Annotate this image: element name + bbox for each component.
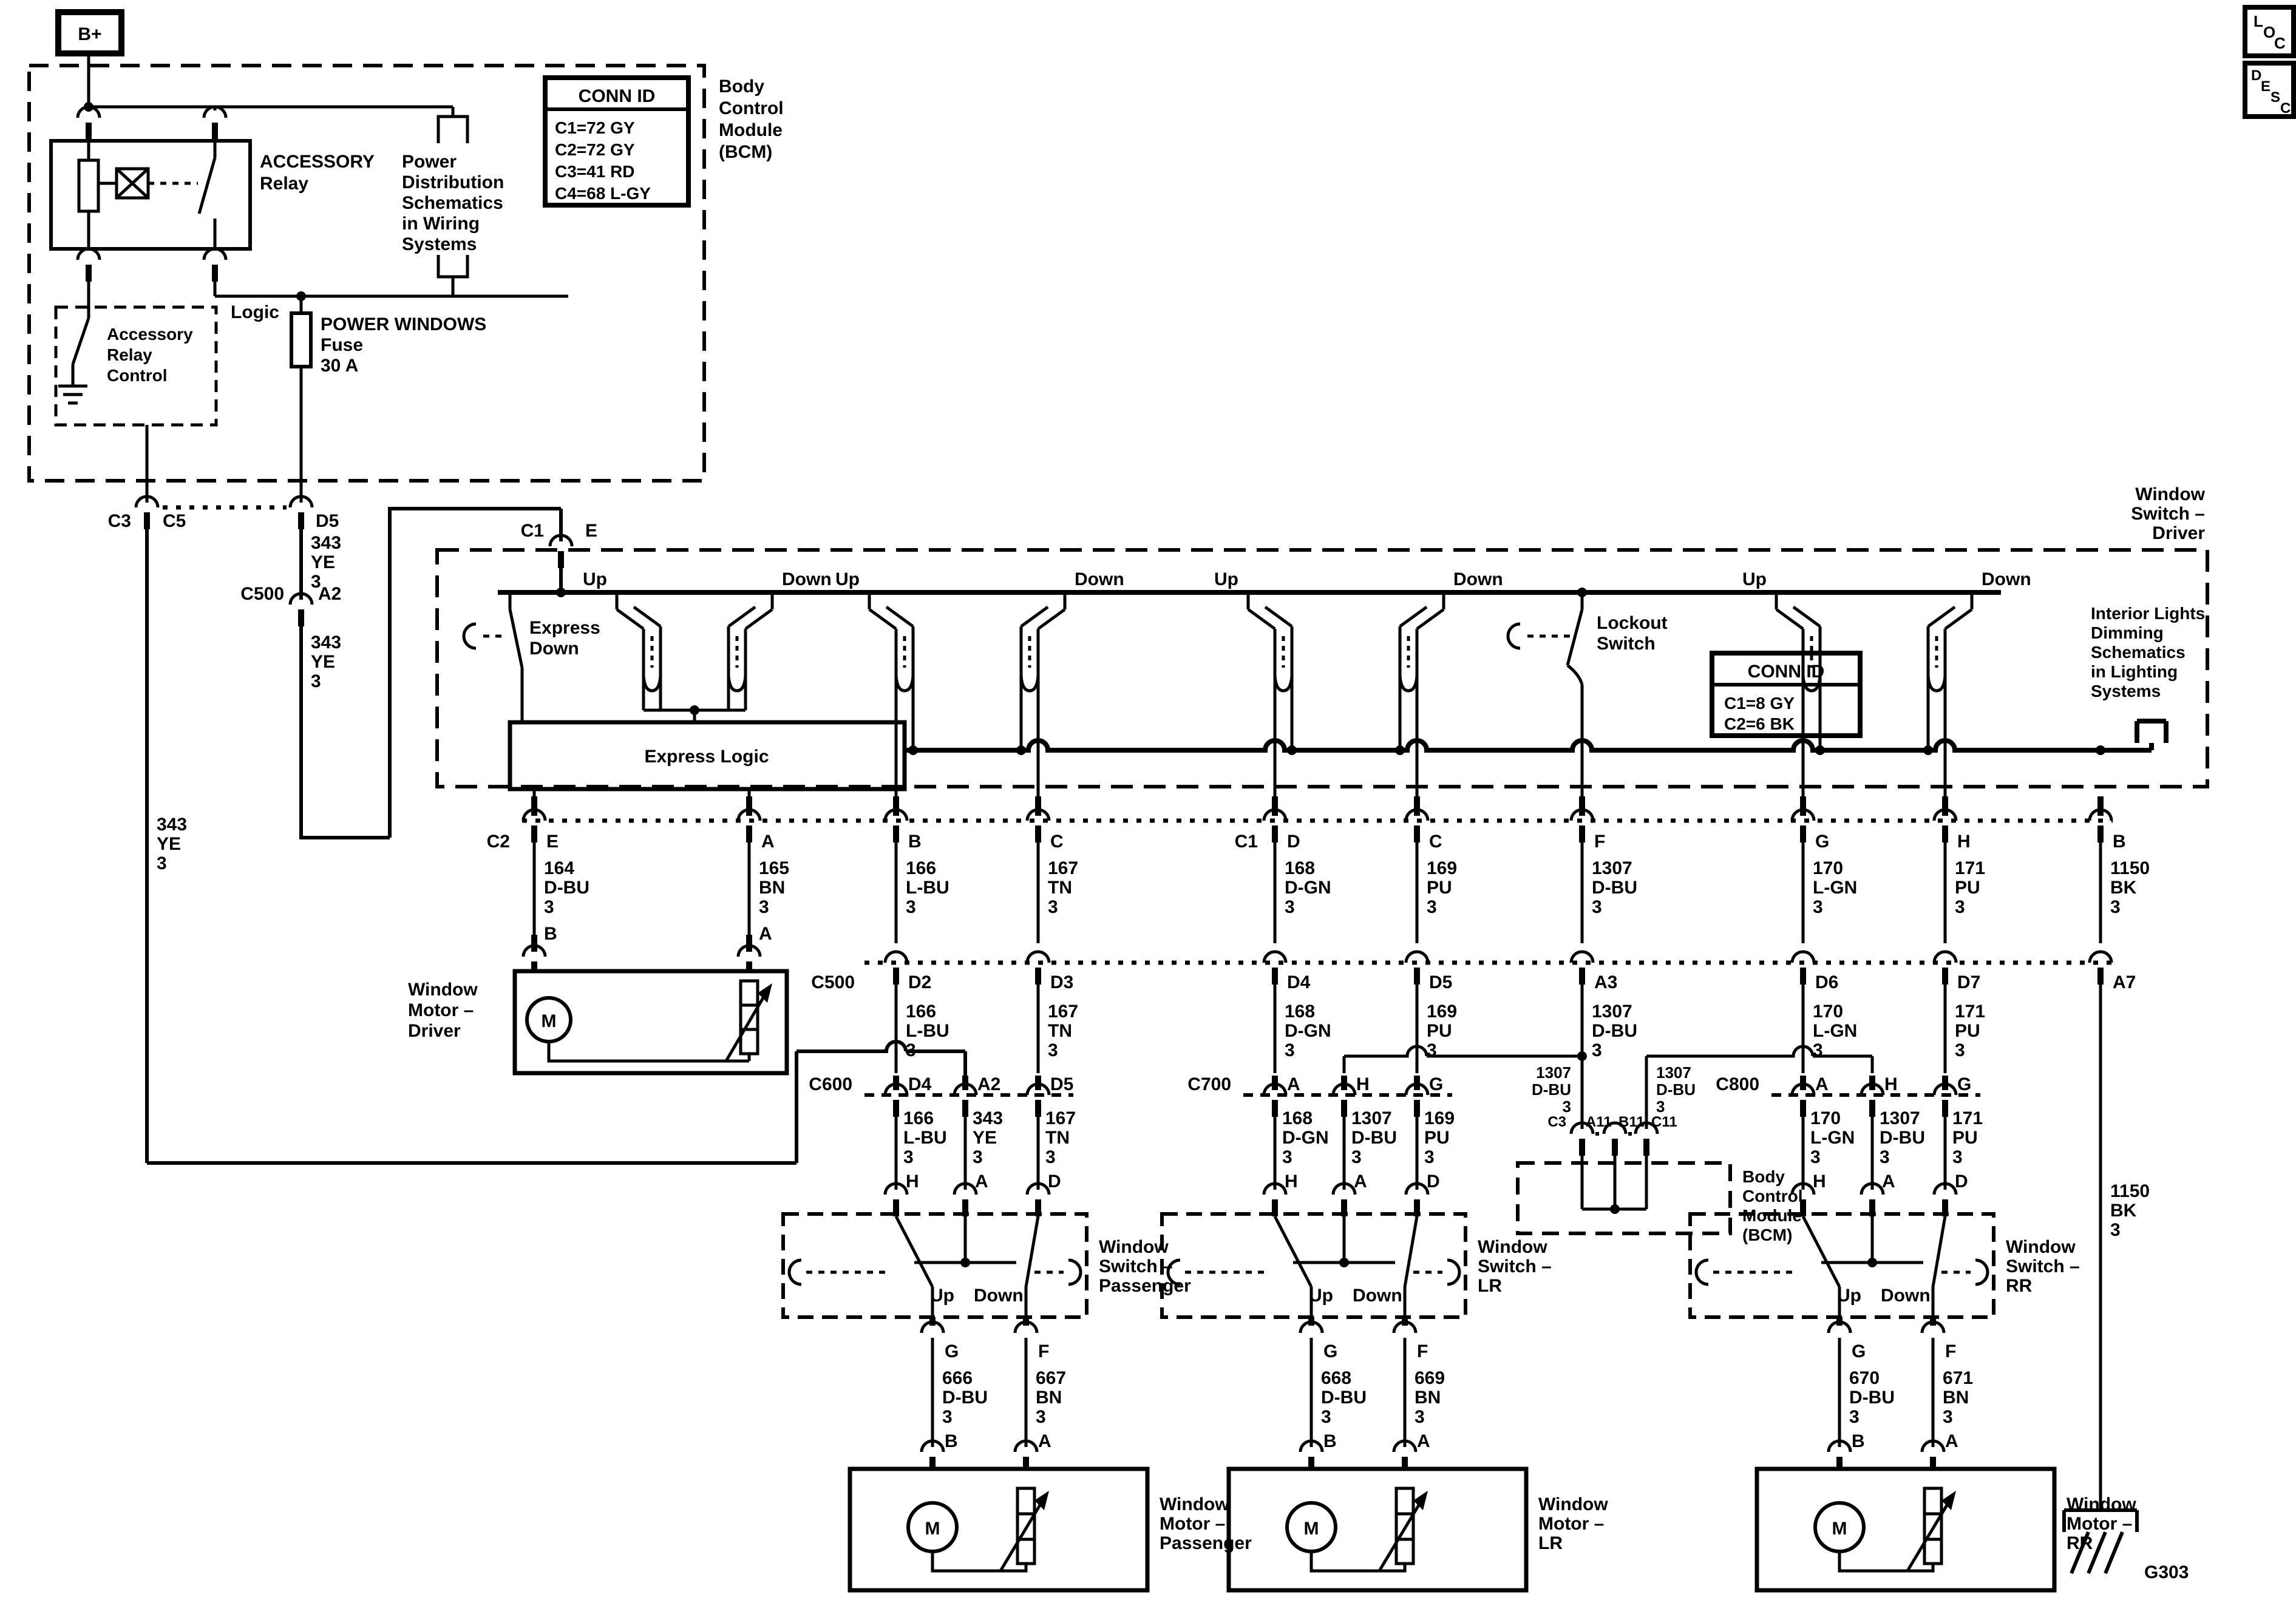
pin-label: D	[1287, 832, 1300, 852]
wire-label: 3	[311, 671, 321, 691]
power-dist-bracket-bottom	[438, 255, 467, 296]
driver-switch-title: Driver	[2152, 523, 2205, 543]
wire-label: 3	[1282, 1147, 1292, 1167]
conn-label-c500: C500	[811, 972, 855, 992]
pin-label: D4	[1287, 972, 1311, 992]
conn-label-c500: C500	[240, 584, 284, 604]
wire-label: BN	[1036, 1388, 1062, 1408]
wire-label: D-BU	[942, 1388, 988, 1408]
arc-label: Relay	[107, 345, 152, 364]
connector-bracket-icon	[1508, 624, 1520, 648]
lockout-label: Lockout	[1597, 613, 1668, 633]
power-dist-line: in Wiring	[402, 214, 480, 234]
wire-label: 170	[1813, 1002, 1843, 1022]
pin-label: F	[1594, 832, 1605, 852]
wire-label: 167	[1045, 1108, 1076, 1128]
doors-layer: C600 D4 A2 D5 166 L-BU 3 343 YE 3 167 TN…	[783, 1074, 2136, 1590]
up-label: Up	[1214, 569, 1238, 589]
wire-label: 3	[1810, 1147, 1821, 1167]
junction-dot	[960, 1258, 970, 1267]
pin-label: D3	[1050, 972, 1073, 992]
row1-wire-labels: 164D-BU3 165BN3 166L-BU3 167TN3 168D-GN3…	[544, 858, 2150, 917]
wire-label: 3	[1849, 1407, 1860, 1427]
motor-label: LR	[1538, 1533, 1563, 1553]
pin-label: F	[1038, 1341, 1049, 1361]
pair4-switches	[1776, 592, 1972, 816]
resistor-arrowhead	[758, 983, 772, 1003]
relay-output-wire	[89, 282, 568, 307]
pin-label-e: E	[585, 521, 597, 541]
wire-label: BN	[759, 878, 785, 898]
wire-label: 3	[1424, 1147, 1435, 1167]
bcm-label-line: (BCM)	[719, 142, 772, 162]
wire-label: PU	[1427, 878, 1452, 898]
switch-box-label: Window	[2006, 1237, 2076, 1257]
fuse-label: Fuse	[321, 335, 363, 355]
resistor-arrow	[1379, 1498, 1423, 1571]
driver-ground-bus	[905, 721, 2166, 750]
pin-label: A2	[977, 1074, 1000, 1094]
switch-box-label: Switch –	[2006, 1256, 2080, 1276]
pin-label: C	[1429, 832, 1442, 852]
wire-label: L-BU	[906, 878, 949, 898]
wire-label: 3	[1952, 1147, 1963, 1167]
wire-label: 343	[311, 632, 341, 653]
pin-label: G	[1852, 1341, 1866, 1361]
wire-label: 1307	[1536, 1063, 1571, 1082]
wire-label: TN	[1048, 878, 1072, 898]
relay-internals	[79, 141, 215, 249]
pin-label: H	[1957, 832, 1971, 852]
door-group: C600 D4 A2 D5 166 L-BU 3 343 YE 3 167 TN…	[783, 1074, 1252, 1590]
relay-switch-blade	[89, 141, 215, 249]
switch-box-label: Switch –	[1478, 1256, 1552, 1276]
bcm2-line: Body	[1742, 1167, 1785, 1186]
pin-label: C11	[1651, 1114, 1677, 1130]
express-logic-outputs	[534, 789, 749, 816]
wire-label: 169	[1424, 1108, 1455, 1128]
motor-label: Passenger	[1160, 1533, 1252, 1553]
wire-label: 3	[1048, 1040, 1058, 1060]
pin-label: D5	[1429, 972, 1452, 992]
pin-label: H	[906, 1171, 919, 1192]
wire-label: 1307	[1351, 1108, 1392, 1128]
conn-label-c3: C3	[1547, 1114, 1566, 1130]
pin-label: A	[1815, 1074, 1829, 1094]
motor-label: Motor –	[2067, 1514, 2132, 1534]
pin-label: G	[1429, 1074, 1443, 1094]
wire-label: TN	[1045, 1128, 1070, 1148]
wire-label: D-BU	[1880, 1128, 1925, 1148]
motor-driver-label: Motor –	[408, 1000, 474, 1020]
interior-line: Interior Lights	[2091, 604, 2205, 623]
pin-label: E	[546, 832, 559, 852]
pin-label: F	[1945, 1341, 1956, 1361]
pin-label-d5: D5	[316, 511, 339, 531]
pair2-switches	[869, 592, 1065, 816]
wire-label: 3	[903, 1147, 914, 1167]
driver-switch-title: Window	[2135, 484, 2205, 504]
bcm-label-line: Body	[719, 76, 764, 97]
wire-label: 169	[1427, 1002, 1457, 1022]
switch-box-label: Passenger	[1099, 1276, 1191, 1296]
express-logic-label: Express Logic	[644, 747, 769, 767]
conn-id2-row: C2=6 BK	[1724, 714, 1795, 733]
arc-label: Control	[107, 366, 168, 385]
wire-label: YE	[973, 1128, 997, 1148]
fuse-symbol	[291, 313, 311, 367]
pin-label: B	[2113, 832, 2126, 852]
wire-label: 3	[1321, 1407, 1331, 1427]
pin-label: A7	[2113, 972, 2136, 992]
interior-lights-label: Interior Lights Dimming Schematics in Li…	[2091, 604, 2205, 700]
wire-label: PU	[1955, 878, 1980, 898]
power-dist-line: Distribution	[402, 172, 504, 192]
pin-label: B	[1852, 1431, 1865, 1451]
pin-label: A	[975, 1171, 988, 1192]
c500-stubs	[896, 968, 2101, 985]
wire-label: 670	[1849, 1368, 1880, 1388]
wire-label: L-BU	[903, 1128, 947, 1148]
wire-label: 3	[1427, 897, 1437, 917]
wire-label: 3	[2110, 897, 2121, 917]
loc-letter: L	[2254, 12, 2263, 30]
wire-label: 343	[311, 533, 341, 553]
arc-label: Accessory	[107, 325, 193, 344]
wire-label: 667	[1036, 1368, 1066, 1388]
junction-dot	[1867, 1258, 1877, 1267]
b-plus-label: B+	[78, 24, 101, 44]
wire-label: 1150	[2110, 858, 2150, 878]
down-label: Down	[1075, 569, 1124, 589]
motor-label: Window	[1538, 1494, 1608, 1514]
wire-label: D-BU	[1351, 1128, 1397, 1148]
wire-label: L-BU	[906, 1021, 949, 1041]
c500-labels: C500 D2 D3 D4 D5 A3 D6 D7 A7	[811, 972, 2136, 992]
wire-label: 3	[906, 1040, 916, 1060]
motor-m-label: M	[542, 1011, 557, 1031]
wire-label: BN	[1943, 1388, 1969, 1408]
down-label: Down	[1453, 569, 1503, 589]
pin-label: D5	[1050, 1074, 1073, 1094]
lockout-switch-blade	[1567, 592, 1582, 816]
power-dist-line: Power	[402, 152, 457, 172]
wire-label: 167	[1048, 1002, 1078, 1022]
wire-label: 343	[157, 815, 187, 835]
wire-label: 169	[1427, 858, 1457, 878]
pin-label: A	[1038, 1431, 1051, 1451]
wire-label: D-BU	[1656, 1080, 1696, 1099]
switch-box-label: Window	[1478, 1237, 1547, 1257]
wire-label: 170	[1813, 858, 1843, 878]
wire-label: 1307	[1592, 1002, 1632, 1022]
wire-label: 671	[1943, 1368, 1973, 1388]
conn-label: C600	[809, 1074, 852, 1094]
pin-label: A	[1945, 1431, 1958, 1451]
pin-label: B	[1323, 1431, 1337, 1451]
wire-label: PU	[1955, 1021, 1980, 1041]
wire-label: D-BU	[1849, 1388, 1895, 1408]
wire-label: 3	[1285, 897, 1295, 917]
motor-label: Motor –	[1160, 1514, 1225, 1534]
express-down-label: Down	[529, 639, 579, 659]
wire-label: PU	[1952, 1128, 1978, 1148]
accessory-relay-box	[51, 141, 250, 249]
wire-label: D-GN	[1282, 1128, 1329, 1148]
pin-label: A	[1417, 1431, 1430, 1451]
down-label: Down	[974, 1286, 1024, 1306]
pin-label: D	[1427, 1171, 1440, 1192]
wire-label: 164	[544, 858, 574, 878]
motor-sensor-resistor	[741, 981, 758, 1054]
wire-label: BN	[1415, 1388, 1441, 1408]
motor-label: Motor –	[1538, 1514, 1604, 1534]
motor-wire-arcs	[922, 1322, 1037, 1452]
down-label: Down	[1881, 1286, 1931, 1306]
conn-id-row: C3=41 RD	[555, 162, 635, 181]
wire-label: D-BU	[544, 878, 589, 898]
desc-letter: E	[2261, 78, 2271, 95]
wire-label: PU	[1427, 1021, 1452, 1041]
motor-m-label: M	[925, 1519, 940, 1539]
conn-label: C700	[1187, 1074, 1231, 1094]
pin-label: B11	[1618, 1114, 1645, 1130]
pin-label: A11	[1586, 1114, 1612, 1130]
wire-label: 167	[1048, 858, 1078, 878]
wire-label: 3	[906, 897, 916, 917]
motor-driver-label: Window	[408, 980, 478, 1000]
wire-label: TN	[1048, 1021, 1072, 1041]
top-wires	[58, 53, 568, 503]
pin-label: F	[1417, 1341, 1428, 1361]
up-label: Up	[1742, 569, 1767, 589]
wire-label: 3	[759, 897, 769, 917]
pin-label: G	[1957, 1074, 1971, 1094]
door-group: C800 A H G 170 L-GN 3 1307 D-BU 3 171 PU…	[1690, 1074, 2136, 1590]
wire-label: 668	[1321, 1368, 1351, 1388]
bcm-label-line: Control	[719, 98, 784, 118]
accessory-relay-label: ACCESSORY	[260, 152, 375, 172]
down-label: Down	[782, 569, 832, 589]
b-plus-feed-wire	[89, 53, 453, 117]
up-label: Up	[1309, 1286, 1333, 1306]
accessory-relay-label: Relay	[260, 174, 308, 194]
wire-label: 3	[1955, 897, 1965, 917]
pin-label: A	[1287, 1074, 1300, 1094]
wire-label: 3	[1048, 897, 1058, 917]
pin-label-lower: A	[759, 924, 772, 944]
fuse-label: 30 A	[321, 356, 358, 376]
wire-label: D-GN	[1285, 1021, 1331, 1041]
power-dist-line: Schematics	[402, 193, 503, 213]
wire-label: 168	[1285, 1002, 1315, 1022]
wire-label: 1150	[2110, 1181, 2150, 1201]
wire-label: 171	[1955, 858, 1985, 878]
pin-label-lower: B	[544, 924, 557, 944]
wire-label: 168	[1285, 858, 1315, 878]
resistor-arrowhead	[1941, 1491, 1956, 1510]
conn-label-c1: C1	[1235, 832, 1258, 852]
pin-label: G	[1815, 832, 1829, 852]
wire-label: 3	[1285, 1040, 1295, 1060]
desc-letter: S	[2271, 89, 2280, 106]
pin-label: H	[1285, 1171, 1298, 1192]
relay-coil-x	[117, 169, 148, 198]
conn-label-c1: C1	[521, 521, 544, 541]
pin-label: B	[908, 832, 922, 852]
wiring-diagram: L O C D E S C B+ Body Control Module (BC…	[0, 0, 2296, 1617]
down-label: Down	[1982, 569, 2031, 589]
wire-label: 666	[942, 1368, 973, 1388]
bcm-label-line: Module	[719, 120, 783, 140]
wire-label: D-BU	[1592, 1021, 1637, 1041]
wire-label: 166	[903, 1108, 934, 1128]
switch-box-label: Window	[1099, 1237, 1169, 1257]
updown-labels: Up Down Up Down Up Down Up Down	[583, 569, 2031, 589]
express-down-label: Express	[529, 618, 600, 638]
wire-label: 3	[1563, 1097, 1571, 1116]
power-dist-line: Systems	[402, 234, 477, 254]
wire-label: 171	[1955, 1002, 1985, 1022]
resistor-arrow	[726, 991, 767, 1061]
wire-label: 165	[759, 858, 789, 878]
wire-label: L-GN	[1813, 1021, 1857, 1041]
wire-label: 3	[1880, 1147, 1890, 1167]
driver-motor-internal-wire	[549, 1042, 749, 1061]
conn-label-c2: C2	[487, 832, 510, 852]
pair3-switches	[1248, 592, 1444, 816]
row1-labels: C2 E A B C C1 D C F G H B	[487, 832, 2126, 852]
pin-label: G	[1323, 1341, 1337, 1361]
wire-label: D-BU	[1592, 878, 1637, 898]
wire-label: L-GN	[1810, 1128, 1855, 1148]
desc-letter: C	[2280, 100, 2291, 117]
motor-label: Window	[1160, 1494, 1229, 1514]
conn-id2-row: C1=8 GY	[1724, 694, 1795, 713]
power-dist-bracket-top	[438, 117, 467, 143]
pin-label: G	[945, 1341, 959, 1361]
pin-label: D	[1955, 1171, 1968, 1192]
pin-label: A	[1354, 1171, 1367, 1192]
pin-label: D	[1048, 1171, 1061, 1192]
driver-motor-stubs	[534, 935, 749, 971]
wire-label: YE	[157, 834, 181, 854]
motor-driver-label: Driver	[408, 1021, 461, 1041]
resistor-arrowhead	[1413, 1491, 1428, 1510]
loc-letter: C	[2274, 34, 2286, 52]
wire-label: 3	[544, 897, 554, 917]
wire-label: 3	[1813, 897, 1823, 917]
wire-label: 3	[1656, 1097, 1665, 1116]
pin-label-c3: C3	[108, 511, 131, 531]
pin-label: B	[945, 1431, 958, 1451]
pin-label: D2	[908, 972, 931, 992]
interior-line: in Lighting	[2091, 662, 2178, 681]
wire-label: 343	[973, 1108, 1003, 1128]
connector-bracket-icon	[464, 624, 476, 648]
wire-label: 3	[1955, 1040, 1965, 1060]
pin-label-c5: C5	[163, 511, 186, 531]
pin-label: A	[761, 832, 775, 852]
riser-labels: 1307 D-BU 3 1307 D-BU 3	[1532, 1063, 1696, 1116]
pin-label-a2: A2	[318, 584, 341, 604]
conn-id2-header: CONN ID	[1748, 662, 1825, 682]
wire-label: 3	[1592, 897, 1602, 917]
pin-label: D7	[1957, 972, 1980, 992]
fuse-label: POWER WINDOWS	[321, 314, 486, 334]
pin-label: C	[1050, 832, 1064, 852]
motor-m-label: M	[1832, 1519, 1847, 1539]
c500-wire-labels: 166L-BU3 167TN3 168D-GN3 169PU3 1307D-BU…	[906, 1002, 1985, 1060]
wire-label: 1307	[1880, 1108, 1920, 1128]
wire-label: D-GN	[1285, 878, 1331, 898]
wire-label: 3	[1592, 1040, 1602, 1060]
pin-label: H	[1356, 1074, 1370, 1094]
wire-label: 1307	[1656, 1063, 1691, 1082]
wire-label: D-BU	[1321, 1388, 1367, 1408]
wire-label: PU	[1424, 1128, 1450, 1148]
motor-m-label: M	[1304, 1519, 1319, 1539]
bcm2-label: Body Control Module (BCM)	[1742, 1167, 1803, 1244]
wire-label: L-GN	[1813, 878, 1857, 898]
wire-label: D-BU	[1532, 1080, 1571, 1099]
g303-label: G303	[2144, 1562, 2189, 1582]
wire-label: 3	[157, 853, 167, 873]
power-dist-label: Power Distribution Schematics in Wiring …	[402, 152, 504, 254]
logic-label: Logic	[231, 302, 279, 322]
pin-label: A3	[1594, 972, 1617, 992]
conn-id-row: C4=68 L-GY	[555, 184, 651, 203]
bcm2-stubs	[1582, 1139, 1646, 1156]
switch-box-label: LR	[1478, 1276, 1502, 1296]
bcm-label: Body Control Module (BCM)	[719, 76, 784, 162]
up-label: Up	[930, 1286, 954, 1306]
arc-switch-ground	[58, 307, 89, 403]
bcm2-line: (BCM)	[1742, 1225, 1792, 1244]
wire-label: 168	[1282, 1108, 1313, 1128]
pin-label: A	[1882, 1171, 1895, 1192]
bcm2-dashed-box	[1518, 1163, 1730, 1233]
conn-label: C800	[1716, 1074, 1759, 1094]
wire-label: BK	[2110, 878, 2137, 898]
up-label: Up	[1837, 1286, 1861, 1306]
motor-wire-arcs	[1829, 1322, 1944, 1452]
relay-coil-resistor	[79, 160, 98, 211]
resistor-arrowhead	[1034, 1491, 1049, 1510]
conn-id-header: CONN ID	[579, 86, 656, 106]
up-label: Up	[583, 569, 607, 589]
desc-letter: D	[2251, 67, 2261, 84]
express-down-switch	[510, 592, 522, 722]
up-label: Up	[835, 569, 860, 589]
pin-label: H	[1884, 1074, 1898, 1094]
wire-label: 3	[1045, 1147, 1056, 1167]
switch-box-label: RR	[2006, 1276, 2033, 1296]
wire-label: 171	[1952, 1108, 1983, 1128]
wire-label: BK	[2110, 1201, 2137, 1221]
resistor-arrow	[1000, 1498, 1044, 1571]
junction-dot	[1339, 1258, 1349, 1267]
wire-label: 166	[906, 858, 936, 878]
motor-wire-arcs	[1300, 1322, 1416, 1452]
pin-label: H	[1813, 1171, 1826, 1192]
interior-line: Systems	[2091, 682, 2161, 700]
interior-line: Dimming	[2091, 623, 2164, 642]
driver-motor-pin-arcs	[523, 946, 760, 957]
wire-label: 3	[942, 1407, 953, 1427]
interior-line: Schematics	[2091, 643, 2186, 662]
wire-label: 3	[1036, 1407, 1046, 1427]
